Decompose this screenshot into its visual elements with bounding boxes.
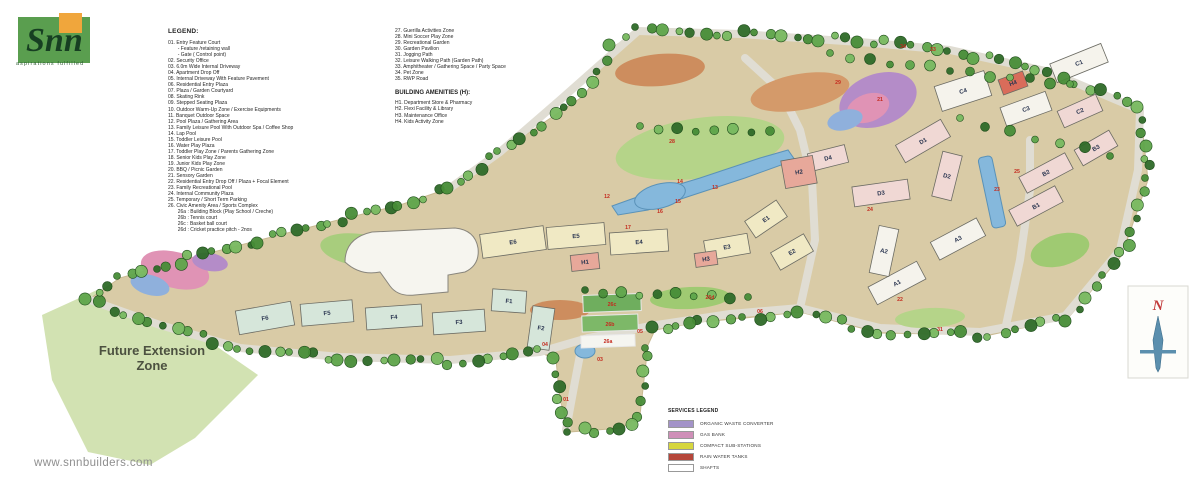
building-label-F4: F4 xyxy=(390,315,398,322)
tree xyxy=(685,28,695,38)
service-swatch xyxy=(668,420,694,428)
services-legend: SERVICES LEGEND ORGANIC WASTE CONVERTERG… xyxy=(668,408,808,473)
building-F5: F5 xyxy=(300,300,354,326)
tree xyxy=(206,337,218,349)
tree xyxy=(670,287,681,298)
tree xyxy=(552,371,559,378)
tree xyxy=(1009,57,1021,69)
tree xyxy=(904,331,911,338)
tree xyxy=(690,293,697,300)
service-label: RAIN WATER TANKS xyxy=(700,454,748,459)
tree xyxy=(563,418,573,428)
tree xyxy=(642,345,649,352)
building-label-D3: D3 xyxy=(877,190,886,197)
tree xyxy=(110,307,120,317)
tree xyxy=(154,266,161,273)
tree xyxy=(972,333,982,343)
marker-34: 34 xyxy=(900,44,906,50)
building-label-F3: F3 xyxy=(455,320,463,327)
tree xyxy=(647,24,657,34)
tree xyxy=(751,29,758,36)
tree xyxy=(954,325,966,337)
website-url: www.snnbuilders.com xyxy=(34,457,153,469)
tree xyxy=(846,54,855,63)
tree xyxy=(722,31,732,41)
logo-wordmark: Snn xyxy=(26,24,156,58)
north-crossbar xyxy=(1140,350,1176,354)
marker-17: 17 xyxy=(625,225,631,231)
tree xyxy=(766,312,776,322)
tree xyxy=(676,28,683,35)
tree xyxy=(906,61,915,70)
tree xyxy=(966,67,975,76)
tree xyxy=(599,289,608,298)
tree xyxy=(381,357,388,364)
tree xyxy=(739,314,746,321)
tree xyxy=(738,25,750,37)
tree xyxy=(79,293,91,305)
legend-column-2: 27. Guerilla Activities Zone28. Mini Soc… xyxy=(395,28,610,125)
marker-29: 29 xyxy=(835,80,841,86)
tree xyxy=(458,178,465,185)
tree xyxy=(944,48,951,55)
tree xyxy=(654,125,663,134)
services-legend-title: SERVICES LEGEND xyxy=(668,408,808,414)
building-H3: H3 xyxy=(694,251,718,268)
tree xyxy=(441,182,453,194)
north-arrow: N xyxy=(1128,286,1188,378)
future-zone-label: Zone xyxy=(136,358,167,373)
tree xyxy=(1136,128,1146,138)
tree xyxy=(406,355,416,365)
tree xyxy=(616,287,627,298)
tree xyxy=(1139,117,1146,124)
tree xyxy=(1007,74,1014,81)
tree xyxy=(795,34,802,41)
tree xyxy=(345,355,357,367)
marker-31: 31 xyxy=(937,327,943,333)
service-swatch xyxy=(668,453,694,461)
tree xyxy=(1140,187,1150,197)
service-row: SHAFTS xyxy=(668,462,808,473)
tree xyxy=(1145,160,1155,170)
tree xyxy=(1077,306,1084,313)
logo-tagline: aspirations fulfilled xyxy=(16,61,84,67)
tree xyxy=(636,396,646,406)
tree xyxy=(710,126,719,135)
marker-21: 21 xyxy=(877,97,883,103)
marker-23: 23 xyxy=(994,187,1000,193)
marker-15: 15 xyxy=(675,199,681,205)
tree xyxy=(607,428,614,435)
tree xyxy=(684,317,696,329)
tree xyxy=(766,127,775,136)
marker-04: 04 xyxy=(542,342,548,348)
north-label: N xyxy=(1152,298,1165,314)
tree xyxy=(547,352,559,364)
marker-03: 03 xyxy=(597,357,603,363)
tree xyxy=(555,407,567,419)
tree xyxy=(981,122,990,131)
tree xyxy=(459,360,466,367)
legend-column-1: LEGEND: 01. Entry Feature Court - Featur… xyxy=(168,28,393,234)
tree xyxy=(1094,83,1106,95)
tree xyxy=(994,54,1004,64)
marker-05: 05 xyxy=(637,329,643,335)
tree xyxy=(175,258,187,270)
marker-12: 12 xyxy=(604,194,610,200)
tree xyxy=(530,129,537,136)
legend-line: 26d : Cricket practice pitch - 2nos xyxy=(168,227,393,233)
tree xyxy=(96,289,103,296)
marker-26d: 26d xyxy=(706,295,715,301)
tree xyxy=(392,201,402,211)
tree xyxy=(1025,319,1037,331)
building-E4: E4 xyxy=(609,229,668,255)
tree xyxy=(820,311,832,323)
tree xyxy=(513,133,525,145)
tree xyxy=(331,354,343,366)
legend-title: LEGEND: xyxy=(168,28,393,35)
marker-26b: 26b xyxy=(606,322,615,328)
tree xyxy=(476,163,488,175)
tree xyxy=(534,346,541,353)
service-row: COMPACT SUB-STATIONS xyxy=(668,440,808,451)
marker-13: 13 xyxy=(712,185,718,191)
tree xyxy=(552,394,562,404)
site-plan-poster: Future ExtensionZoneA1A2A3B1B2B3C1C2C3C4… xyxy=(0,0,1200,500)
tree xyxy=(766,29,776,39)
tree xyxy=(907,41,914,48)
tree xyxy=(1142,175,1149,182)
tree xyxy=(486,153,493,160)
tree xyxy=(692,128,699,135)
marker-28: 28 xyxy=(669,139,675,145)
tree xyxy=(1123,239,1135,251)
tree xyxy=(813,311,820,318)
tree xyxy=(886,330,896,340)
tree xyxy=(1079,292,1091,304)
building-label-E4: E4 xyxy=(635,240,643,247)
marker-26c: 26c xyxy=(608,302,617,308)
tree xyxy=(298,346,310,358)
building-label-H3: H3 xyxy=(702,256,711,263)
building-H1: H1 xyxy=(570,253,600,272)
tree xyxy=(582,287,589,294)
tree xyxy=(636,292,643,299)
tree xyxy=(1045,78,1056,89)
service-label: ORGANIC WASTE CONVERTER xyxy=(700,421,774,426)
tree xyxy=(986,52,993,59)
brand-logo: Snn aspirations fulfilled xyxy=(16,12,166,82)
tree xyxy=(230,241,242,253)
tree xyxy=(159,322,166,329)
tree xyxy=(1001,328,1011,338)
building-label-E5: E5 xyxy=(572,234,580,241)
tree xyxy=(407,197,419,209)
tree xyxy=(1108,257,1120,269)
tree xyxy=(1131,199,1143,211)
tree xyxy=(1053,314,1060,321)
legend-list-2: 27. Guerilla Activities Zone28. Mini Soc… xyxy=(395,28,610,82)
tree xyxy=(325,356,332,363)
tree xyxy=(554,381,566,393)
tree xyxy=(656,24,668,36)
building-H2: H2 xyxy=(781,155,817,188)
tree xyxy=(431,352,443,364)
tree xyxy=(1080,142,1091,153)
tree xyxy=(259,345,271,357)
tree xyxy=(957,115,964,122)
tree xyxy=(1140,140,1152,152)
tree xyxy=(672,123,683,134)
tree xyxy=(755,313,767,325)
service-label: SHAFTS xyxy=(700,465,719,470)
tree xyxy=(1131,101,1143,113)
tree xyxy=(473,355,485,367)
tree xyxy=(463,171,473,181)
tree xyxy=(925,60,936,71)
building-label-H1: H1 xyxy=(581,260,590,267)
building-label-F5: F5 xyxy=(323,311,331,318)
tree xyxy=(208,248,215,255)
tree xyxy=(967,52,979,64)
tree xyxy=(200,330,207,337)
legend-line: H4. Kids Activity Zone xyxy=(395,119,610,125)
tree xyxy=(363,356,373,366)
tree xyxy=(494,148,501,155)
tree xyxy=(276,347,286,357)
tree xyxy=(745,294,752,301)
marker-26a: 26a xyxy=(604,339,613,345)
tree xyxy=(133,313,145,325)
tree xyxy=(701,28,713,40)
tree xyxy=(848,326,855,333)
tree xyxy=(724,293,735,304)
tree xyxy=(851,36,863,48)
tree xyxy=(173,322,185,334)
marker-06: 06 xyxy=(757,309,763,315)
amenities-list: H1. Department Store & PharmacyH2. Flexi… xyxy=(395,100,610,124)
tree xyxy=(234,346,241,353)
service-row: GAS BANK xyxy=(668,429,808,440)
marker-24: 24 xyxy=(867,207,873,213)
tree xyxy=(643,351,653,361)
tree xyxy=(947,329,954,336)
tree xyxy=(506,348,518,360)
service-swatch xyxy=(668,464,694,472)
marker-22: 22 xyxy=(897,297,903,303)
tree xyxy=(197,247,209,259)
tree xyxy=(626,418,638,430)
tree xyxy=(251,237,263,249)
building-label-F1: F1 xyxy=(505,299,513,306)
building-E5: E5 xyxy=(546,223,606,250)
tree xyxy=(442,360,452,370)
tree xyxy=(1125,227,1135,237)
tree xyxy=(246,348,253,355)
tree xyxy=(879,35,889,45)
building-F1: F1 xyxy=(491,289,526,313)
legend-line: 35. RWP Road xyxy=(395,76,610,82)
tree xyxy=(637,365,649,377)
tree xyxy=(653,290,662,299)
service-label: GAS BANK xyxy=(700,432,725,437)
tree xyxy=(1005,125,1016,136)
service-row: ORGANIC WASTE CONVERTER xyxy=(668,418,808,429)
building-F3: F3 xyxy=(432,309,485,335)
future-zone-label: Future Extension xyxy=(99,343,205,358)
marker-33: 33 xyxy=(930,47,936,53)
tree xyxy=(93,295,105,307)
tree xyxy=(1086,86,1096,96)
service-label: COMPACT SUB-STATIONS xyxy=(700,443,761,448)
tree xyxy=(1122,97,1132,107)
marker-14: 14 xyxy=(677,179,683,185)
tree xyxy=(726,315,736,325)
tree xyxy=(1107,153,1114,160)
tree xyxy=(837,315,847,325)
service-swatch xyxy=(668,442,694,450)
tree xyxy=(713,32,720,39)
tree xyxy=(1032,136,1039,143)
tree xyxy=(1099,272,1106,279)
tree xyxy=(1067,81,1074,88)
tree xyxy=(632,24,639,31)
tree xyxy=(727,123,738,134)
tree xyxy=(120,312,127,319)
service-row: RAIN WATER TANKS xyxy=(668,451,808,462)
building-amenities-title: BUILDING AMENITIES (H): xyxy=(395,90,610,96)
tree xyxy=(500,353,507,360)
tree xyxy=(523,347,533,357)
tree xyxy=(161,262,171,272)
tree xyxy=(832,32,839,39)
tree xyxy=(870,41,877,48)
tree xyxy=(947,68,954,75)
tree xyxy=(1042,67,1052,77)
tree xyxy=(613,423,625,435)
tree xyxy=(784,311,791,318)
building-F4: F4 xyxy=(365,304,422,330)
tree xyxy=(707,316,719,328)
tree xyxy=(223,341,233,351)
tree xyxy=(623,34,630,41)
services-legend-rows: ORGANIC WASTE CONVERTERGAS BANKCOMPACT S… xyxy=(668,418,808,473)
tree xyxy=(791,306,803,318)
tree xyxy=(1022,63,1029,70)
tree xyxy=(803,34,813,44)
tree xyxy=(1092,282,1102,292)
tree xyxy=(182,250,192,260)
tree xyxy=(579,422,591,434)
service-swatch xyxy=(668,431,694,439)
marker-01: 01 xyxy=(563,397,569,403)
tree xyxy=(984,334,991,341)
tree xyxy=(827,50,834,57)
tree xyxy=(1059,315,1071,327)
tree xyxy=(775,30,787,42)
marker-16: 16 xyxy=(657,209,663,215)
legend-list-1: 01. Entry Feature Court - Feature /retai… xyxy=(168,40,393,234)
tree xyxy=(286,349,293,356)
tree xyxy=(388,354,400,366)
tree xyxy=(420,196,427,203)
tree xyxy=(918,328,930,340)
tree xyxy=(1114,247,1124,257)
tree xyxy=(865,54,876,65)
tree xyxy=(564,429,571,436)
tree xyxy=(840,33,850,43)
tree xyxy=(114,273,121,280)
tree xyxy=(135,265,147,277)
marker-25: 25 xyxy=(1014,169,1020,175)
tree xyxy=(637,123,644,130)
tree xyxy=(748,129,755,136)
tree xyxy=(1012,326,1019,333)
tree xyxy=(417,356,424,363)
tree xyxy=(642,383,649,390)
tree xyxy=(985,72,996,83)
tree xyxy=(1134,215,1141,222)
tree xyxy=(663,324,673,334)
tree xyxy=(1056,139,1065,148)
tree xyxy=(646,321,658,333)
tree xyxy=(1026,74,1035,83)
tree xyxy=(812,35,824,47)
tree xyxy=(103,282,113,292)
tree xyxy=(887,61,894,68)
tree xyxy=(1114,92,1121,99)
tree xyxy=(862,325,874,337)
